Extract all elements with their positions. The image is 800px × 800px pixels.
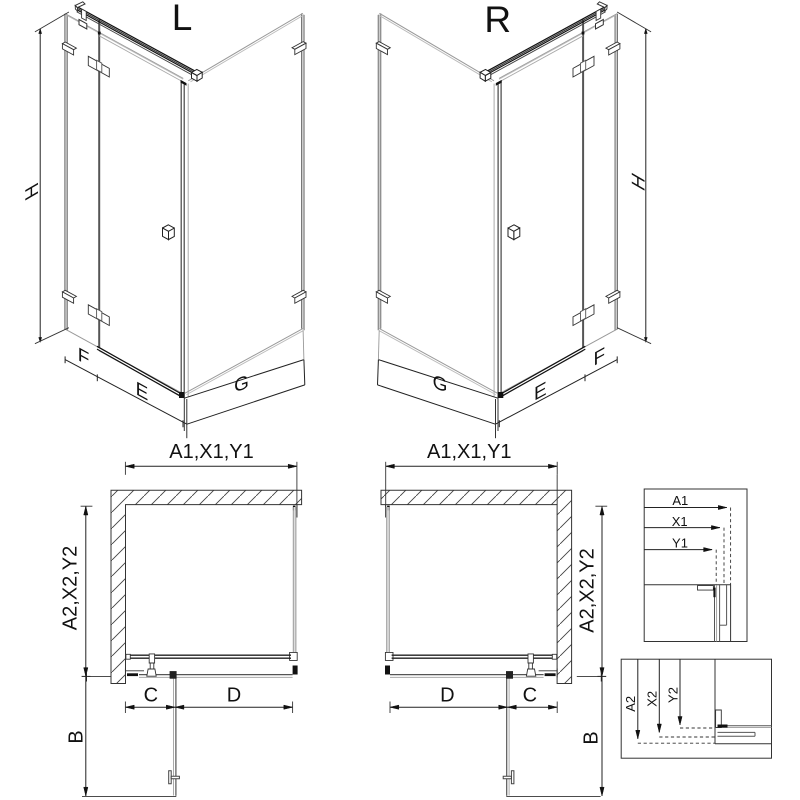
svg-text:L: L: [172, 0, 193, 38]
svg-text:A2: A2: [623, 696, 638, 712]
svg-text:A1: A1: [672, 493, 688, 508]
svg-text:A2,X2,Y2: A2,X2,Y2: [60, 546, 82, 631]
svg-text:X2: X2: [644, 691, 659, 707]
svg-text:D: D: [227, 685, 241, 707]
svg-text:D: D: [440, 685, 454, 707]
svg-text:R: R: [484, 0, 511, 40]
svg-text:C: C: [144, 685, 158, 707]
svg-text:Y1: Y1: [672, 535, 688, 550]
svg-text:A1,X1,Y1: A1,X1,Y1: [169, 441, 254, 463]
svg-text:X1: X1: [672, 514, 688, 529]
svg-text:A1,X1,Y1: A1,X1,Y1: [427, 441, 512, 463]
svg-text:B: B: [580, 731, 602, 744]
svg-text:Y2: Y2: [666, 687, 681, 703]
svg-text:B: B: [66, 730, 88, 743]
svg-text:C: C: [523, 685, 537, 707]
svg-text:A2,X2,Y2: A2,X2,Y2: [576, 548, 598, 633]
